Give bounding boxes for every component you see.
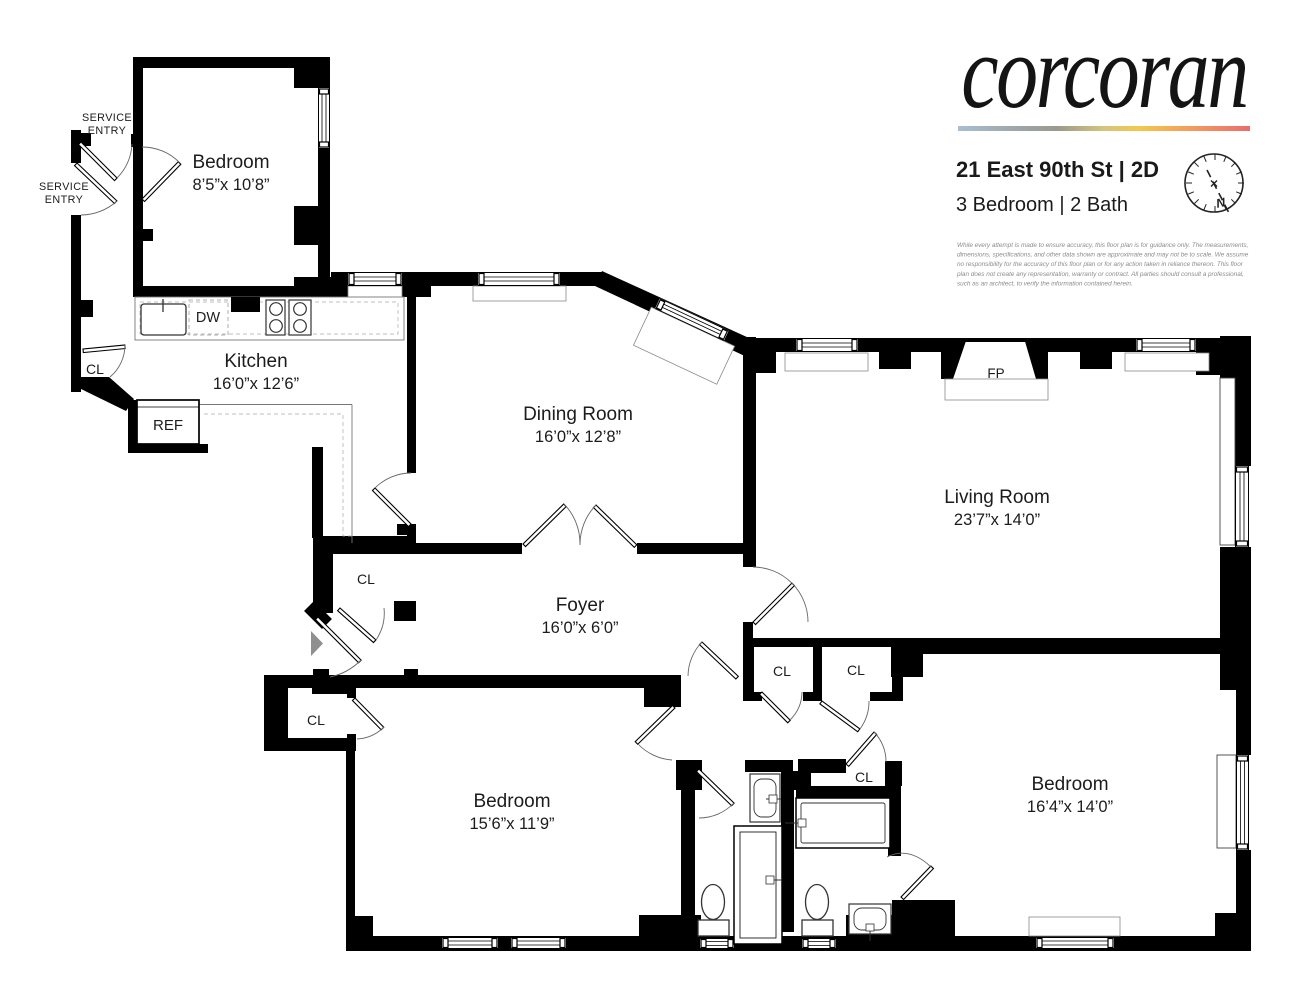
svg-text:21 East 90th St | 2D: 21 East 90th St | 2D bbox=[956, 157, 1159, 182]
svg-text:CL: CL bbox=[773, 663, 791, 679]
svg-text:CL: CL bbox=[357, 571, 375, 587]
svg-text:8’5”x 10’8”: 8’5”x 10’8” bbox=[192, 176, 269, 194]
svg-text:23’7”x 14’0”: 23’7”x 14’0” bbox=[954, 511, 1040, 529]
svg-text:corcoran: corcoran bbox=[961, 13, 1247, 130]
svg-text:16’4”x 14’0”: 16’4”x 14’0” bbox=[1027, 798, 1113, 816]
svg-text:Living Room: Living Room bbox=[944, 487, 1050, 508]
svg-text:dimensions, specifications, an: dimensions, specifications, and other da… bbox=[957, 252, 1249, 259]
svg-text:REF: REF bbox=[153, 417, 183, 434]
svg-text:ENTRY: ENTRY bbox=[45, 194, 83, 206]
svg-text:Bedroom: Bedroom bbox=[473, 791, 550, 812]
svg-text:Bedroom: Bedroom bbox=[192, 152, 269, 173]
svg-text:CL: CL bbox=[855, 769, 873, 785]
svg-text:SERVICE: SERVICE bbox=[82, 112, 132, 124]
svg-text:15’6”x 11’9”: 15’6”x 11’9” bbox=[470, 815, 555, 833]
svg-text:Dining Room: Dining Room bbox=[523, 404, 633, 425]
svg-text:CL: CL bbox=[307, 712, 325, 728]
svg-text:plan does not create any repre: plan does not create any representation,… bbox=[956, 271, 1244, 278]
svg-text:3 Bedroom | 2 Bath: 3 Bedroom | 2 Bath bbox=[956, 194, 1128, 216]
svg-text:FP: FP bbox=[987, 366, 1004, 381]
svg-text:Bedroom: Bedroom bbox=[1031, 774, 1108, 795]
svg-text:CL: CL bbox=[847, 662, 865, 678]
svg-text:CL: CL bbox=[86, 361, 104, 377]
svg-text:DW: DW bbox=[196, 310, 220, 326]
svg-text:SERVICE: SERVICE bbox=[39, 181, 89, 193]
svg-text:such as an architect, to verif: such as an architect, to verify the info… bbox=[957, 280, 1133, 287]
svg-text:16’0”x 6’0”: 16’0”x 6’0” bbox=[541, 619, 618, 637]
svg-text:While every attempt is made to: While every attempt is made to ensure ac… bbox=[957, 242, 1248, 249]
svg-text:Kitchen: Kitchen bbox=[224, 351, 287, 372]
svg-text:no responsibility for the accu: no responsibility for the accuracy of th… bbox=[957, 261, 1244, 268]
svg-text:ENTRY: ENTRY bbox=[88, 125, 126, 137]
svg-text:16’0”x 12’8”: 16’0”x 12’8” bbox=[535, 428, 621, 446]
svg-text:Foyer: Foyer bbox=[556, 595, 605, 616]
svg-text:16’0”x 12’6”: 16’0”x 12’6” bbox=[213, 375, 299, 393]
